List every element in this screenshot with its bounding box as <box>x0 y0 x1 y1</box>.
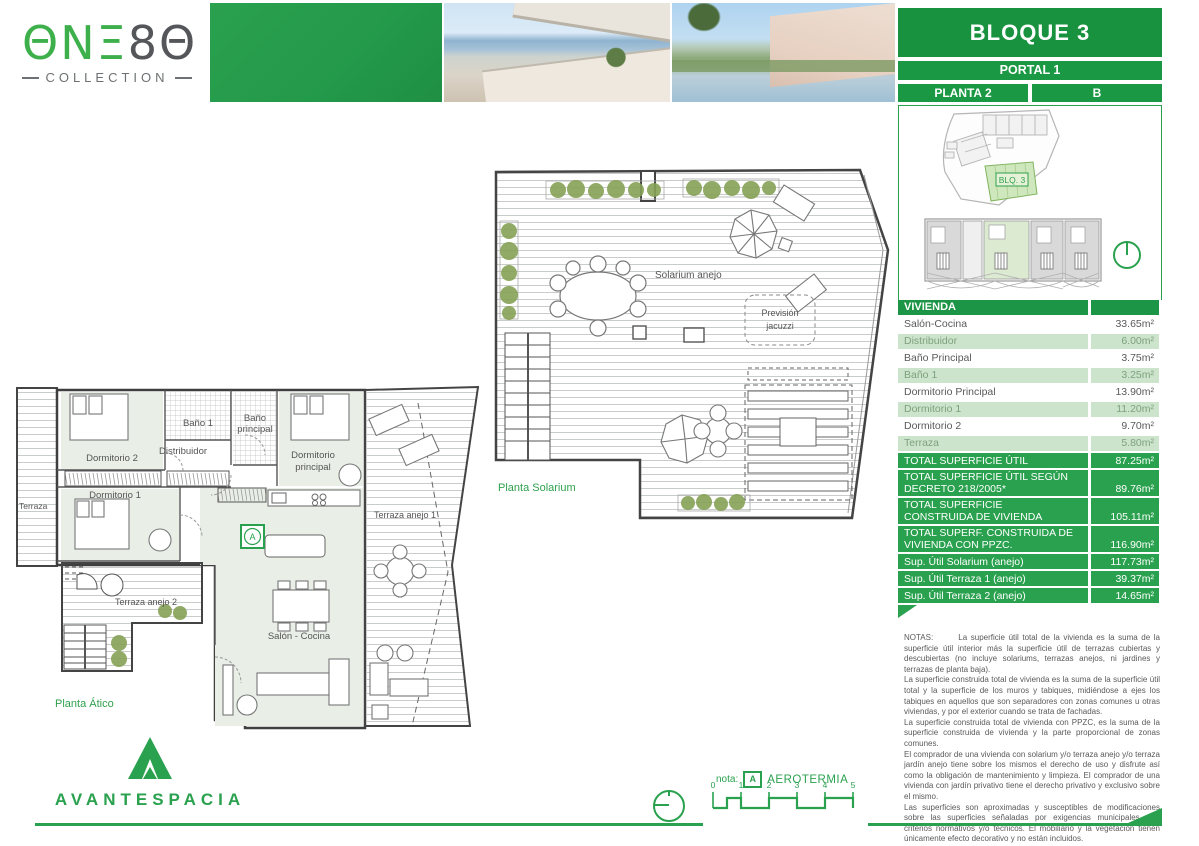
photo-plant <box>603 47 629 73</box>
avantespacia-logo: AVANTESPACIA <box>35 731 265 810</box>
total-row: TOTAL SUPERFICIE ÚTIL87.25m² <box>898 453 1162 468</box>
scale-tick: 0 <box>711 780 716 790</box>
aerotermia-note: nota: A AEROTERMIA <box>716 771 848 788</box>
table-header-row: VIVIENDA <box>898 300 1162 315</box>
dorm-ppal-label-1: Dormitorio <box>291 450 335 461</box>
site-plan-drawing: BLQ. 3 <box>899 106 1161 213</box>
prevision-label-1: Previsión <box>761 308 798 318</box>
planta-solarium-title: Planta Solarium <box>498 482 576 494</box>
total-row: TOTAL SUPERF. CONSTRUIDA DE VIVIENDA CON… <box>898 526 1162 552</box>
corner-accent <box>898 605 917 618</box>
corner-accent <box>1128 808 1162 823</box>
terrace-sea-photo <box>444 3 670 102</box>
areas-table: VIVIENDA Salón-Cocina33.65m² Distribuido… <box>898 300 1162 605</box>
table-row: Baño Principal3.75m² <box>898 351 1162 366</box>
dorm2-label: Dormitorio 2 <box>86 453 138 464</box>
footer-rule-right <box>868 823 1162 826</box>
one80-logo: ΘNΞ8Θ COLLECTION <box>22 20 192 85</box>
plan-sheet: ΘNΞ8Θ COLLECTION BLOQUE 3 PORTAL 1 PLANT… <box>0 0 1199 846</box>
photo-hedge <box>672 60 895 72</box>
footer-rule-left <box>35 823 703 826</box>
letter-cell: B <box>1032 84 1162 102</box>
dash-left <box>22 77 39 79</box>
notes-block: NOTAS: La superficie útil total de la vi… <box>904 633 1160 846</box>
atico-plan: Terraza <box>15 375 485 740</box>
bloque-header: BLOQUE 3 <box>898 8 1162 57</box>
distribuidor-label: Distribuidor <box>159 446 207 457</box>
table-row: Baño 13.25m² <box>898 368 1162 383</box>
dash-right <box>175 77 192 79</box>
bano-ppal-label-1: Baño <box>244 413 266 424</box>
blq3-label: BLQ. 3 <box>999 175 1026 185</box>
one80-wordmark: ΘNΞ8Θ <box>22 20 192 66</box>
pool-photo <box>672 3 895 102</box>
logo-subtitle: COLLECTION <box>22 70 192 85</box>
total-row: TOTAL SUPERFICIE CONSTRUIDA DE VIVIENDA1… <box>898 498 1162 524</box>
north-arrow-icon <box>1114 241 1140 268</box>
table-row: Dormitorio 111.20m² <box>898 402 1162 417</box>
note-paragraph: La superficie construida total de vivien… <box>904 718 1160 750</box>
photo-building <box>770 3 895 87</box>
aerotermia-badge: A <box>241 525 264 548</box>
table-header: VIVIENDA <box>898 300 1088 315</box>
terraza-anejo1-label: Terraza anejo 1 <box>374 510 436 520</box>
dorm-ppal-label-2: principal <box>295 462 330 473</box>
bano-ppal-label-2: principal <box>237 424 272 435</box>
table-row: Distribuidor6.00m² <box>898 334 1162 349</box>
green-panel <box>210 3 442 102</box>
photo-palm <box>681 3 727 37</box>
aerotermia-badge: A <box>743 771 762 788</box>
scale-tick: 5 <box>851 780 856 790</box>
dorm1-label: Dormitorio 1 <box>89 490 141 501</box>
logo-one-text: ΘNΞ <box>22 16 128 70</box>
site-plan: BLQ. 3 <box>898 105 1162 214</box>
portal-header: PORTAL 1 <box>898 61 1162 80</box>
salon-label: Salón - Cocina <box>268 631 331 642</box>
avantespacia-icon <box>98 731 202 783</box>
svg-text:A: A <box>249 532 255 542</box>
table-row: Salón-Cocina33.65m² <box>898 317 1162 332</box>
bano1-label: Baño 1 <box>183 418 213 429</box>
collection-text: COLLECTION <box>45 70 168 85</box>
terraza-label: Terraza <box>19 501 48 511</box>
table-row: Dormitorio Principal13.90m² <box>898 385 1162 400</box>
planta-atico-title: Planta Ático <box>55 697 114 710</box>
aerotermia-text: AEROTERMIA <box>767 774 848 786</box>
table-row: Dormitorio 29.70m² <box>898 419 1162 434</box>
total-row: TOTAL SUPERFICIE ÚTIL SEGÚN DECRETO 218/… <box>898 470 1162 496</box>
note-paragraph: La superficie construida total de vivien… <box>904 675 1160 717</box>
solarium-plan: Previsión jacuzzi Solarium anejo Planta <box>488 163 893 523</box>
total-row: Sup. Útil Solarium (anejo)117.73m² <box>898 554 1162 569</box>
north-arrow-icon <box>653 790 685 822</box>
photo-band <box>210 3 895 102</box>
total-row: Sup. Útil Terraza 2 (anejo)14.65m² <box>898 588 1162 603</box>
solarium-anejo-label: Solarium anejo <box>655 270 722 281</box>
avantespacia-wordmark: AVANTESPACIA <box>35 790 265 810</box>
table-row: Terraza5.80m² <box>898 436 1162 451</box>
prevision-label-2: jacuzzi <box>765 321 794 331</box>
note-paragraph: El comprador de una vivienda con solariu… <box>904 750 1160 803</box>
planta-row: PLANTA 2 B <box>898 84 1162 102</box>
photo-parapet <box>482 43 670 102</box>
planta-cell: PLANTA 2 <box>898 84 1028 102</box>
terraza-anejo2-label: Terraza anejo 2 <box>115 597 177 607</box>
total-row: Sup. Útil Terraza 1 (anejo)39.37m² <box>898 571 1162 586</box>
photo-ceiling <box>513 3 670 44</box>
nota-label: nota: <box>716 774 738 785</box>
note-paragraph: NOTAS: La superficie útil total de la vi… <box>904 633 1160 675</box>
key-plan <box>898 213 1162 300</box>
logo-80-text: 8Θ <box>128 16 197 70</box>
key-plan-drawing <box>899 213 1161 300</box>
